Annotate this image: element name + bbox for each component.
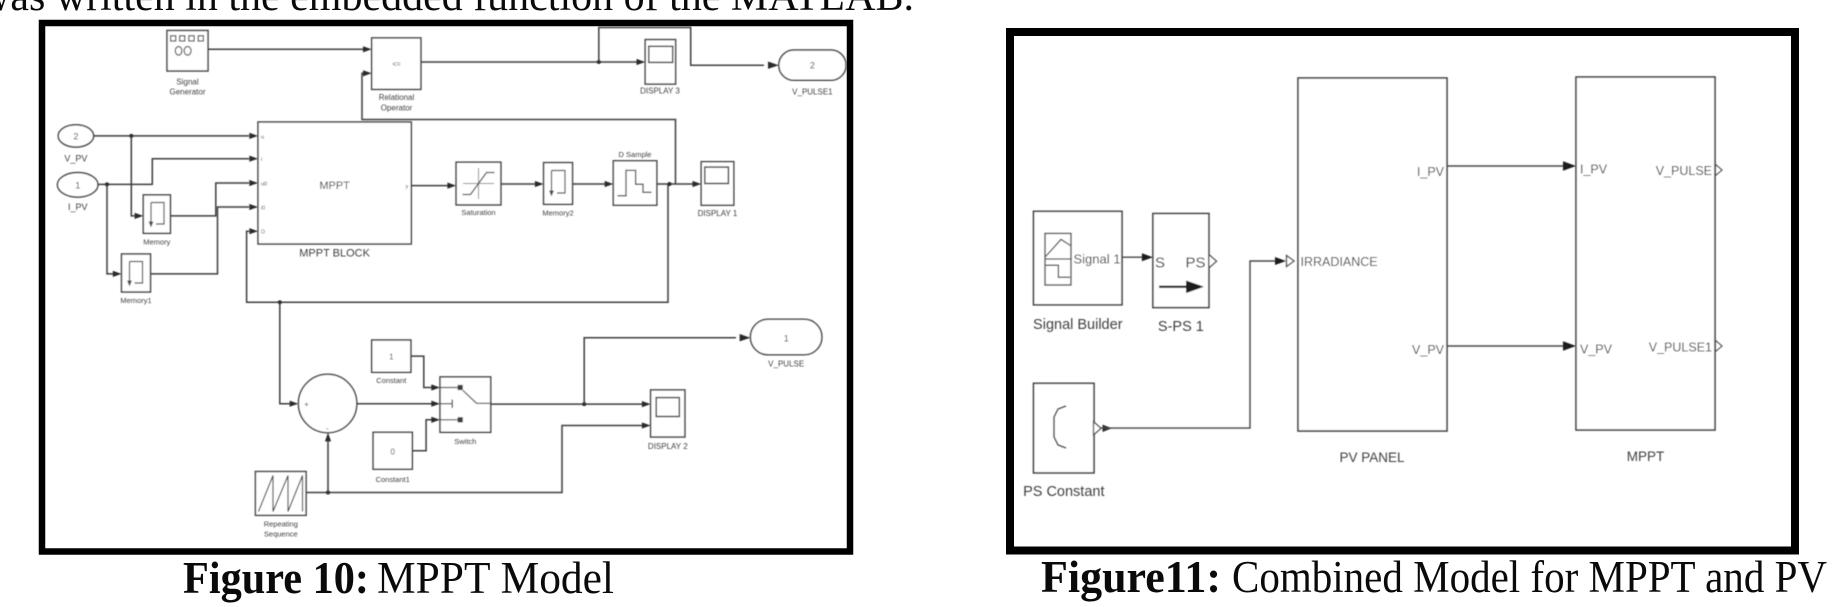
svg-text:1: 1 bbox=[784, 334, 789, 344]
svg-text:Memory1: Memory1 bbox=[120, 296, 151, 305]
svg-text:V_PV: V_PV bbox=[1580, 343, 1613, 357]
svg-text:Combined Model for MPPT and PV: Combined Model for MPPT and PV bbox=[1232, 552, 1827, 602]
svg-text:I_PV: I_PV bbox=[1580, 163, 1608, 177]
svg-text:S: S bbox=[1155, 255, 1165, 272]
svg-text:DISPLAY 1: DISPLAY 1 bbox=[698, 209, 738, 218]
svg-text:MPPT BLOCK: MPPT BLOCK bbox=[299, 248, 370, 260]
svg-text:Repeating: Repeating bbox=[264, 520, 298, 529]
svg-text:Memory2: Memory2 bbox=[542, 209, 573, 218]
svg-text:2: 2 bbox=[810, 61, 815, 71]
svg-text:Constant: Constant bbox=[376, 376, 407, 385]
svg-text:V_PV: V_PV bbox=[64, 154, 87, 164]
svg-text:Figure 10:: Figure 10: bbox=[183, 553, 369, 603]
svg-text:Figure11:: Figure11: bbox=[1041, 552, 1221, 602]
svg-text:V_PULSE1: V_PULSE1 bbox=[1649, 341, 1712, 355]
svg-text:D Sample: D Sample bbox=[619, 150, 652, 159]
svg-text:1: 1 bbox=[75, 180, 80, 190]
svg-text:-: - bbox=[326, 424, 329, 433]
svg-text:Operator: Operator bbox=[381, 104, 413, 113]
svg-text:MPPT Model: MPPT Model bbox=[377, 553, 614, 603]
svg-text:Saturation: Saturation bbox=[461, 208, 495, 217]
svg-text:D: D bbox=[261, 230, 265, 236]
svg-text:V_PULSE: V_PULSE bbox=[768, 360, 804, 369]
svg-text:1: 1 bbox=[389, 353, 394, 362]
svg-text:u0: u0 bbox=[261, 182, 267, 188]
svg-text:u: u bbox=[261, 134, 264, 140]
svg-text:PV PANEL: PV PANEL bbox=[1339, 450, 1405, 465]
svg-text:I_PV: I_PV bbox=[68, 202, 88, 212]
svg-text:PS Constant: PS Constant bbox=[1023, 484, 1104, 500]
svg-text:MPPT: MPPT bbox=[1627, 449, 1665, 464]
svg-text:Signal Builder: Signal Builder bbox=[1033, 317, 1123, 333]
svg-text:DISPLAY 2: DISPLAY 2 bbox=[648, 442, 688, 451]
svg-text:Constant1: Constant1 bbox=[376, 475, 410, 484]
svg-text:Signal 1: Signal 1 bbox=[1074, 252, 1121, 267]
svg-text:Switch: Switch bbox=[454, 437, 476, 446]
svg-text:0: 0 bbox=[390, 448, 395, 457]
svg-text:i: i bbox=[261, 157, 262, 163]
svg-text:PS: PS bbox=[1186, 255, 1206, 272]
svg-text:<=: <= bbox=[392, 62, 400, 69]
svg-text:Memory: Memory bbox=[143, 238, 170, 247]
svg-text:+: + bbox=[304, 400, 309, 409]
svg-text:IRRADIANCE: IRRADIANCE bbox=[1301, 255, 1378, 269]
svg-text:V_PULSE: V_PULSE bbox=[1656, 164, 1712, 178]
svg-text:Signal: Signal bbox=[176, 78, 198, 87]
svg-text:y: y bbox=[406, 184, 409, 190]
svg-text:MPPT: MPPT bbox=[319, 180, 350, 192]
svg-text:2: 2 bbox=[73, 132, 78, 142]
svg-text:Generator: Generator bbox=[169, 88, 205, 97]
svg-text:was written in the embedded fu: was written in the embedded function of … bbox=[0, 0, 914, 20]
svg-text:i0: i0 bbox=[261, 206, 265, 212]
svg-text:V_PULSE1: V_PULSE1 bbox=[792, 88, 833, 97]
svg-text:V_PV: V_PV bbox=[1412, 343, 1445, 357]
svg-text:S-PS 1: S-PS 1 bbox=[1158, 319, 1204, 335]
svg-text:I_PV: I_PV bbox=[1417, 165, 1445, 179]
svg-text:Relational: Relational bbox=[379, 93, 415, 102]
svg-text:Sequence: Sequence bbox=[264, 530, 298, 539]
svg-text:DISPLAY 3: DISPLAY 3 bbox=[640, 87, 680, 96]
